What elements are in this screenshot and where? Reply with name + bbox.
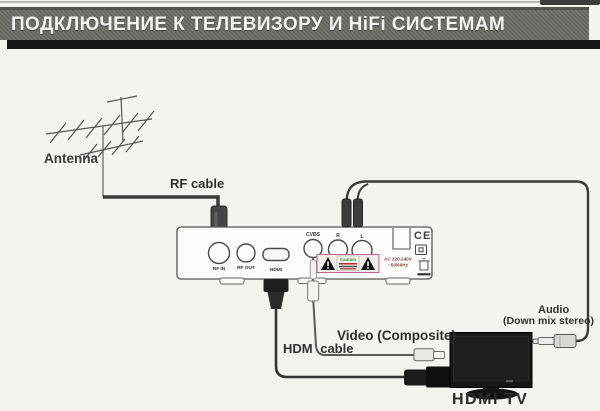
tv-indicator <box>506 380 513 382</box>
hdmi-port-label: HDMI <box>270 267 283 273</box>
antenna-icon <box>46 96 154 197</box>
caution-sticker: Caution <box>317 255 379 273</box>
power-rating-line1: AC 220-240V <box>384 257 413 262</box>
hdmi-plug-tv-end <box>404 367 454 388</box>
hdmi-plug-shell <box>264 279 289 292</box>
manual-page: ПОДКЛЮЧЕНИЕ К ТЕЛЕВИЗОРУ И HiFi СИСТЕМАМ… <box>0 0 600 411</box>
rca-plug-video <box>308 281 319 301</box>
rf-cable-line <box>103 197 218 208</box>
rca-plug-l <box>354 199 363 227</box>
hdmi-cable-label: HDM cable <box>283 341 353 356</box>
tv-illustration <box>450 333 532 400</box>
audio-l-label: L <box>360 234 363 240</box>
hdmi-plug-boot <box>268 292 285 309</box>
hdmi-port <box>263 249 289 261</box>
rf-in-label: RF IN <box>213 266 226 272</box>
audio-r-label: R <box>336 233 340 239</box>
rca-plug-r <box>342 199 351 227</box>
audio-sublabel: (Down mix stereo) <box>503 315 594 327</box>
cvbs-label: CVBS <box>306 232 321 238</box>
receiver-back-panel: RF IN RF OUT HDMI CVBS R L Caution <box>177 227 432 284</box>
video-composite-label: Video (Composite) <box>337 328 456 343</box>
rf-cable-label: RF cable <box>170 176 224 191</box>
caution-text: Caution <box>340 257 357 262</box>
audio-jack-plug <box>533 335 576 348</box>
antenna-label: Antenna <box>44 151 98 166</box>
rca-plug-video-tv-end <box>414 349 445 361</box>
power-rating-line2: ~50/60Hz <box>388 263 408 268</box>
rf-out-label: RF OUT <box>237 265 255 271</box>
ce-mark: CE <box>414 230 431 242</box>
rf-in-connector <box>209 243 230 264</box>
hdmi-tv-label: HDMI TV <box>452 391 528 409</box>
rf-out-connector <box>237 244 255 262</box>
